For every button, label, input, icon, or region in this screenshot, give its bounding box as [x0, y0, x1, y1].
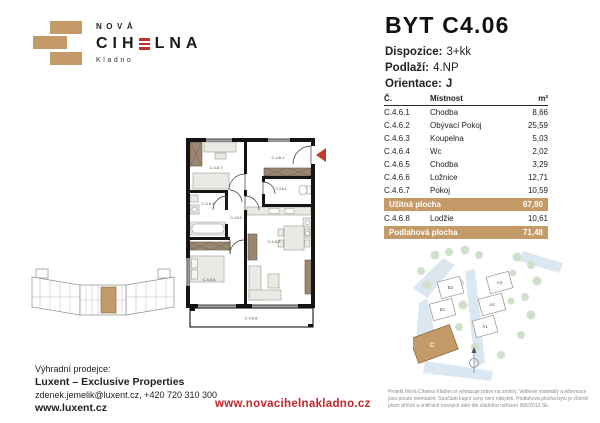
- detail-podlazi: Podlaží:4.NP: [385, 60, 471, 76]
- unit-details: Dispozice:3+kk Podlaží:4.NP Orientace:J: [385, 44, 471, 92]
- building-label: A2: [489, 302, 495, 307]
- project-website-link[interactable]: www.novacihelnakladno.cz: [215, 398, 371, 410]
- page-title: BYT C4.06: [385, 12, 510, 39]
- seller-contact[interactable]: zdenek.jemelik@luxent.cz, +420 720 310 3…: [35, 389, 217, 402]
- building-label: A3: [497, 280, 503, 285]
- brand-city: Kladno: [96, 57, 202, 64]
- room-label-loggia: C.4.6.8: [245, 316, 259, 321]
- building-label: B1: [440, 307, 446, 312]
- room-label-bedroom: C.4.6.6: [203, 277, 217, 282]
- brick-logo-icon: [32, 21, 84, 67]
- room-label-living: C.4.6.2: [268, 239, 282, 244]
- table-row: C.4.6.3 Koupelna 5,03: [384, 132, 548, 145]
- room-label-room: C.4.6.7: [210, 165, 224, 170]
- legal-disclaimer: Projekt Nová Cihelna Kladno si vyhrazuje…: [388, 389, 590, 410]
- floor-plan: C.4.6.1 C.4.6.7 C.4.6.4 C.4.6.3 C.4.6.5 …: [178, 132, 328, 347]
- brand-name-top: NOVÁ: [96, 22, 202, 31]
- brick-e-icon: [139, 38, 150, 50]
- room-label-hall2: C.4.6.5: [231, 216, 242, 220]
- site-plan: B2 B1 A3 A2 A1 C: [413, 243, 591, 385]
- room-label-hall1: C.4.6.1: [272, 155, 286, 160]
- table-row: C.4.6.8 Lodžie 10,61: [384, 212, 548, 225]
- table-header: Č. Místnost m²: [384, 92, 548, 106]
- table-row: C.4.6.5 Chodba 3,29: [384, 158, 548, 171]
- building-label: B2: [448, 285, 454, 290]
- seller-website-link[interactable]: www.luxent.cz: [35, 402, 217, 415]
- room-label-bath: C.4.6.3: [202, 201, 216, 206]
- brand-name-part2: LNA: [155, 35, 203, 53]
- usable-area-row: Užitná plocha 67,90: [384, 198, 548, 211]
- seller-block: Výhradní prodejce: Luxent – Exclusive Pr…: [35, 363, 217, 415]
- highlighted-unit: [101, 287, 116, 313]
- floor-area-row: Podlahová plocha 71,48: [384, 226, 548, 239]
- logo-text: NOVÁ CIH LNA Kladno: [96, 22, 202, 64]
- building-label: A1: [482, 324, 488, 329]
- detail-orientace: Orientace:J: [385, 76, 471, 92]
- room-table: Č. Místnost m² C.4.6.1 Chodba 8,66 C.4.6…: [384, 92, 548, 240]
- table-row: C.4.6.2 Obývací Pokoj 25,59: [384, 119, 548, 132]
- entrance-arrow-icon: [316, 148, 326, 162]
- building-section-plan: [28, 255, 178, 345]
- table-row: C.4.6.7 Pokoj 10,59: [384, 184, 548, 197]
- seller-intro: Výhradní prodejce:: [35, 363, 217, 376]
- seller-name: Luxent – Exclusive Properties: [35, 376, 217, 389]
- table-row: C.4.6.1 Chodba 8,66: [384, 106, 548, 119]
- table-row: C.4.6.4 Wc 2,02: [384, 145, 548, 158]
- table-row: C.4.6.6 Ložnice 12,71: [384, 171, 548, 184]
- detail-dispozice: Dispozice:3+kk: [385, 44, 471, 60]
- brand-name-part1: CIH: [96, 35, 139, 53]
- building-c-label: C: [430, 343, 435, 349]
- room-label-wc: C.4.6.4: [276, 187, 287, 191]
- brochure-page: NOVÁ CIH LNA Kladno BYT C4.06 Dispozice:…: [0, 0, 600, 423]
- brand-name-main: CIH LNA: [96, 35, 202, 53]
